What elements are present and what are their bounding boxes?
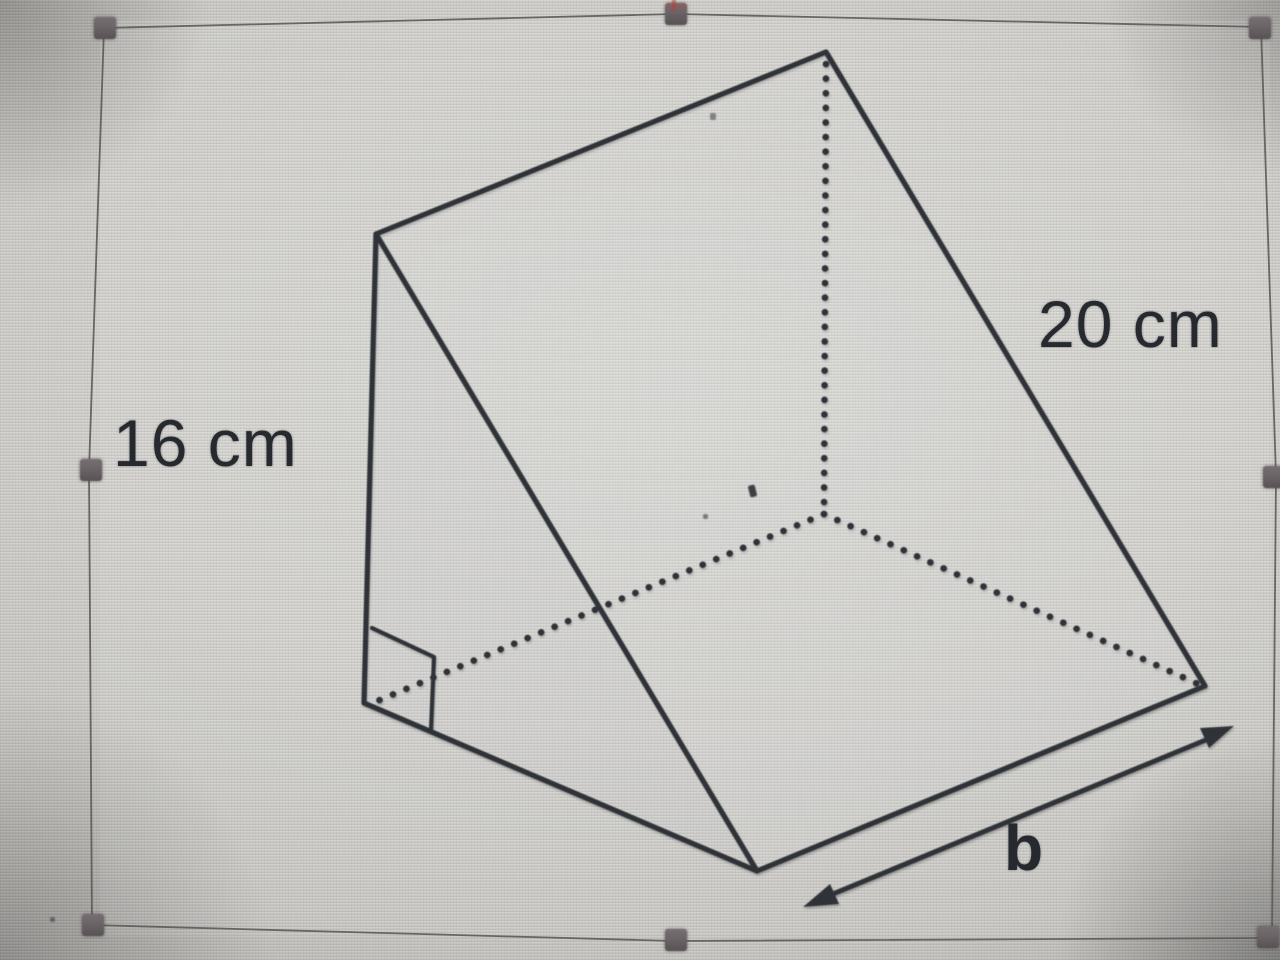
resize-handle-bottom-left[interactable]: [82, 914, 104, 936]
dust-speck: [703, 514, 708, 519]
pixel-glitch: [672, 0, 676, 12]
arrowhead-left: [803, 884, 839, 907]
resize-handle-top-right[interactable]: [1249, 17, 1271, 39]
dust-speck: [710, 113, 716, 120]
prism-faces: [364, 52, 1205, 871]
height-label: 16 cm: [113, 410, 298, 476]
arrowhead-right: [1200, 726, 1234, 748]
resize-handle-top-middle[interactable]: [665, 3, 687, 25]
resize-handle-middle-left[interactable]: [80, 459, 102, 481]
resize-handle-middle-right[interactable]: [1263, 466, 1280, 488]
resize-handle-top-left[interactable]: [94, 17, 116, 39]
depth-label: b: [1004, 816, 1044, 880]
prism-diagram: [0, 0, 1280, 960]
slant-label: 20 cm: [1038, 291, 1223, 357]
resize-handle-bottom-middle[interactable]: [665, 929, 687, 951]
resize-handle-bottom-right[interactable]: [1257, 926, 1279, 948]
dust-speck: [50, 917, 55, 922]
photographed-screen: 16 cm 20 cm b: [0, 0, 1280, 960]
